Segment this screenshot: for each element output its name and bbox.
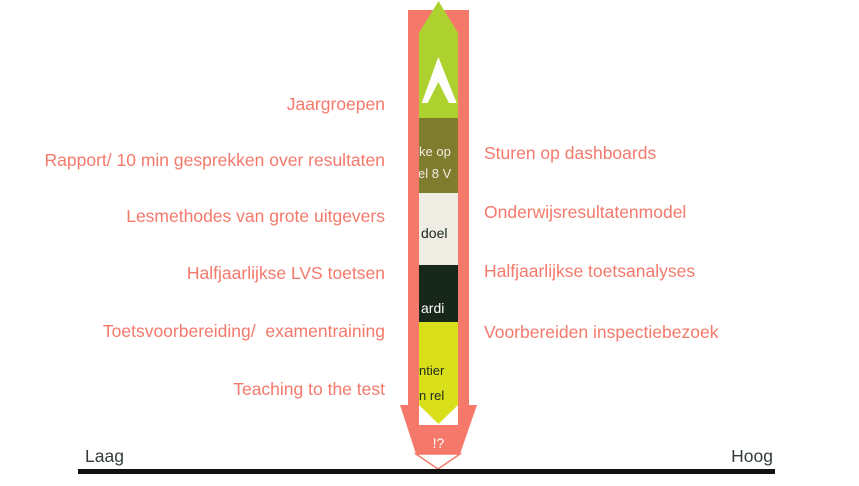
- question-exclamation-badge: !?: [433, 435, 445, 451]
- left-label-lvs-toetsen: Halfjaarlijkse LVS toetsen: [187, 263, 385, 283]
- right-label-inspectiebezoek: Voorbereiden inspectiebezoek: [484, 322, 718, 342]
- right-label-onderwijsresultatenmodel: Onderwijsresultatenmodel: [484, 202, 686, 222]
- left-label-lesmethodes: Lesmethodes van grote uitgevers: [126, 206, 385, 226]
- right-label-dashboards: Sturen op dashboards: [484, 143, 656, 163]
- right-label-toetsanalyses: Halfjaarlijkse toetsanalyses: [484, 261, 695, 281]
- column-text-cream: doel: [421, 225, 447, 241]
- left-label-jaargroepen: Jaargroepen: [287, 94, 385, 114]
- down-arrow-outlined-tip: [416, 454, 460, 469]
- center-arrow-graphic: ke op el 8 V doel ardi ntier n rel !?: [395, 0, 481, 475]
- diagram-canvas: Jaargroepen Rapport/ 10 min gesprekken o…: [0, 0, 859, 486]
- column-text-olive-1: ke op: [419, 144, 451, 159]
- left-label-rapport-gesprekken: Rapport/ 10 min gesprekken over resultat…: [45, 150, 385, 170]
- left-label-teaching-to-the-test: Teaching to the test: [233, 379, 385, 399]
- left-label-toetsvoorbereiding: Toetsvoorbereiding/ examentraining: [103, 321, 385, 341]
- axis-label-laag: Laag: [85, 446, 124, 467]
- axis-label-hoog: Hoog: [731, 446, 773, 467]
- column-text-yellow-1: ntier: [419, 363, 445, 378]
- column-text-dark: ardi: [421, 300, 444, 316]
- column-text-yellow-2: n rel: [419, 388, 444, 403]
- axis-line: [78, 469, 775, 474]
- column-text-olive-2: el 8 V: [418, 166, 452, 181]
